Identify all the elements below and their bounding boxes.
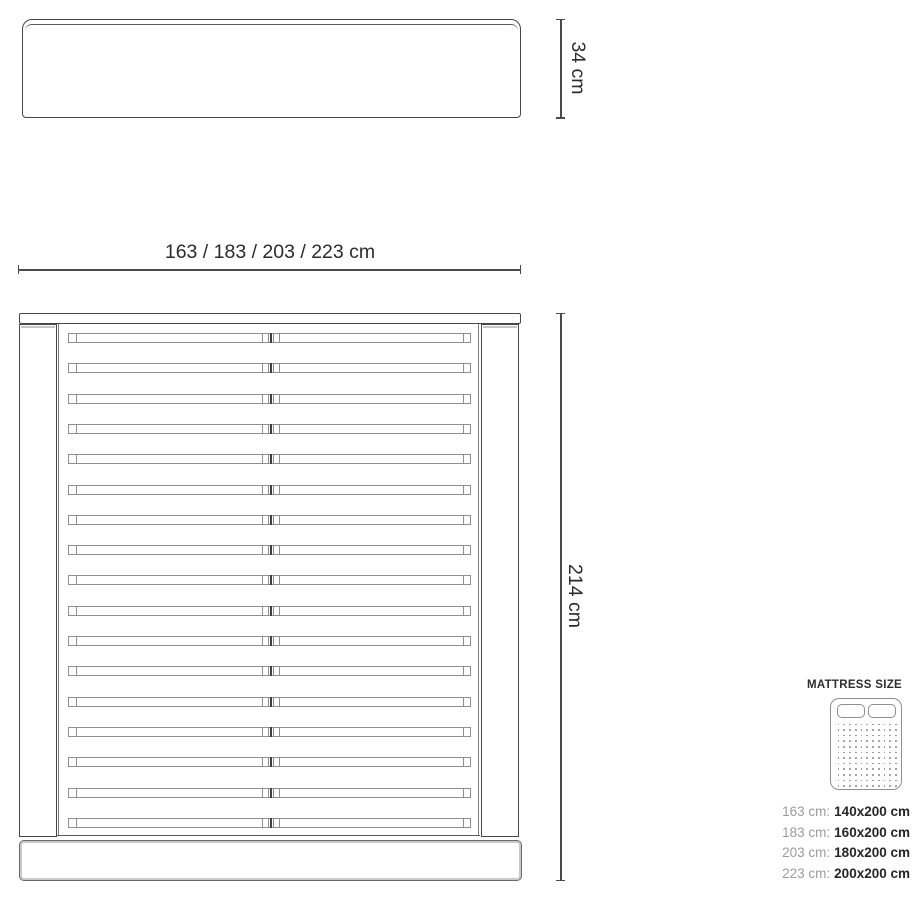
legend-row: 183 cm:160x200 cm bbox=[782, 823, 910, 844]
frame-length-label: 214 cm bbox=[566, 551, 586, 641]
mattress-size-title: MATTRESS SIZE bbox=[807, 679, 902, 691]
frame-width-value: 203 cm: bbox=[782, 845, 830, 860]
slat-row bbox=[68, 363, 471, 373]
dimension-tick bbox=[556, 19, 565, 21]
legend-row: 163 cm:140x200 cm bbox=[782, 802, 910, 823]
slat-row bbox=[68, 485, 471, 495]
headboard-height-label: 34 cm bbox=[569, 25, 589, 111]
dimension-tick bbox=[556, 117, 565, 119]
headboard-top-edge-line bbox=[25, 24, 518, 31]
mattress-size-value: 200x200 cm bbox=[834, 866, 910, 881]
slat-row bbox=[68, 424, 471, 434]
slat-row bbox=[68, 666, 471, 676]
slat-area-bottom-edge bbox=[56, 835, 480, 836]
mattress-icon bbox=[830, 698, 902, 790]
slat-row bbox=[68, 333, 471, 343]
slat-row bbox=[68, 697, 471, 707]
slat-row bbox=[68, 394, 471, 404]
frame-width-label: 163 / 183 / 203 / 223 cm bbox=[19, 241, 521, 264]
dimension-tick bbox=[556, 313, 565, 315]
mattress-size-value: 160x200 cm bbox=[834, 825, 910, 840]
frame-length-dimension-line bbox=[560, 313, 562, 881]
slat-row bbox=[68, 636, 471, 646]
frame-width-dimension-line bbox=[18, 269, 521, 271]
slat-row bbox=[68, 575, 471, 585]
footboard-top-view bbox=[19, 840, 522, 881]
headboard-top-view-rail bbox=[19, 313, 521, 324]
side-rail-left bbox=[19, 324, 57, 837]
slat-row bbox=[68, 757, 471, 767]
mattress-size-value: 140x200 cm bbox=[834, 804, 910, 819]
dimension-tick bbox=[520, 265, 522, 274]
mattress-size-value: 180x200 cm bbox=[834, 845, 910, 860]
slat-area-right-edge bbox=[478, 324, 479, 835]
mattress-size-table: 163 cm:140x200 cm 183 cm:160x200 cm 203 … bbox=[782, 802, 910, 885]
slat-row bbox=[68, 454, 471, 464]
bed-dimension-diagram: 34 cm 163 / 183 / 203 / 223 cm 214 cm MA… bbox=[0, 0, 920, 900]
slat-row bbox=[68, 788, 471, 798]
frame-width-value: 223 cm: bbox=[782, 866, 830, 881]
slat-row bbox=[68, 545, 471, 555]
mattress-dots bbox=[831, 699, 901, 789]
frame-width-value: 183 cm: bbox=[782, 825, 830, 840]
headboard-height-dimension-line bbox=[560, 19, 562, 118]
headboard-side-view bbox=[22, 19, 521, 118]
frame-width-value: 163 cm: bbox=[782, 804, 830, 819]
legend-row: 203 cm:180x200 cm bbox=[782, 843, 910, 864]
legend-row: 223 cm:200x200 cm bbox=[782, 864, 910, 885]
dimension-tick bbox=[18, 265, 20, 274]
slat-row bbox=[68, 606, 471, 616]
dimension-tick bbox=[556, 880, 565, 882]
rail-shadow-line bbox=[483, 326, 517, 329]
slat-row bbox=[68, 727, 471, 737]
side-rail-right bbox=[481, 324, 519, 837]
slat-row bbox=[68, 818, 471, 828]
slat-area-left-edge bbox=[58, 324, 59, 835]
slat-row bbox=[68, 515, 471, 525]
rail-shadow-line bbox=[21, 326, 55, 329]
